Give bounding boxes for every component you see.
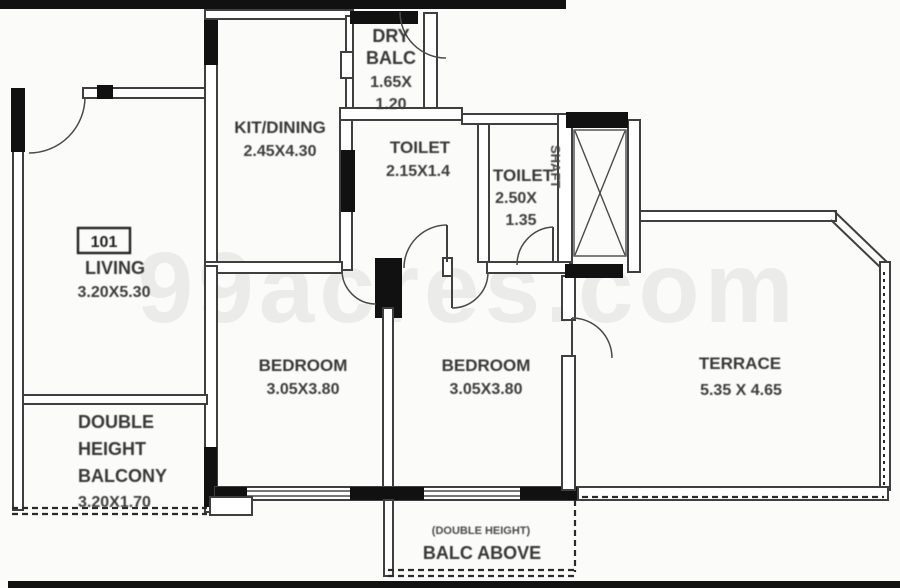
- living-dim: 3.20X5.30: [78, 284, 151, 301]
- entrance-door-arc: [29, 97, 85, 153]
- balcony-corner-detail: [210, 497, 252, 515]
- dry-balc-dim-line2: 1.20: [375, 96, 406, 113]
- dhb-label-line3: BALCONY: [78, 466, 167, 486]
- terrace-corner-column: [565, 264, 623, 278]
- toilet2-right-wall: [558, 114, 572, 265]
- dry-balc-label-line1: DRY: [372, 26, 409, 46]
- toilet2-top-wall: [462, 114, 568, 124]
- room-double-height-balcony: DOUBLE HEIGHT BALCONY 3.20X1.70: [78, 412, 167, 511]
- toilet1-label: TOILET: [390, 138, 451, 157]
- toilet1-dim: 2.15X1.4: [386, 163, 450, 180]
- balc-above-note: (DOUBLE HEIGHT): [432, 525, 531, 537]
- top-border-bar: [0, 0, 566, 9]
- entrance-column: [11, 88, 25, 152]
- room-toilet-1: TOILET 2.15X1.4: [386, 138, 451, 180]
- room-bedroom-1: BEDROOM 3.05X3.80: [259, 356, 348, 398]
- bedroom1-dim: 3.05X3.80: [267, 381, 340, 398]
- floor-plan-canvas: 99acres.com: [0, 0, 900, 588]
- room-bedroom-2: BEDROOM 3.05X3.80: [442, 356, 531, 398]
- room-kit-dining: KIT/DINING 2.45X4.30: [234, 118, 326, 160]
- toilet2-label: TOILET: [493, 166, 554, 185]
- kitchen-top-wall: [205, 10, 353, 19]
- corridor-wall-left: [205, 262, 342, 273]
- watermark-text: 99acres.com: [137, 232, 798, 344]
- toilet1-left-column: [341, 150, 355, 212]
- bedroom2-label: BEDROOM: [442, 356, 531, 375]
- bedroom2-right-wall-upper: [562, 276, 575, 320]
- terrace-dim: 5.35 X 4.65: [700, 382, 782, 399]
- balcony-top-wall: [23, 395, 207, 404]
- bottom-wall-column-2: [350, 487, 424, 500]
- corridor-wall-right: [487, 262, 570, 273]
- dry-balc-dim-line1: 1.65X: [370, 74, 412, 91]
- room-toilet-2: TOILET 2.50X 1.35: [493, 166, 554, 229]
- dry-balc-label-line2: BALC: [366, 48, 416, 68]
- shaft-header-column: [566, 112, 628, 128]
- drybalc-right-wall: [424, 13, 437, 112]
- dhb-label-line2: HEIGHT: [78, 439, 146, 459]
- bedroom2-dim: 3.05X3.80: [450, 381, 523, 398]
- kitchen-left-column: [204, 13, 218, 65]
- dhb-dim: 3.20X1.70: [78, 494, 151, 511]
- toilet2-dim-line1: 2.50X: [495, 190, 537, 207]
- balc-above-label: BALC ABOVE: [423, 543, 541, 563]
- bedrooms-divider-wall: [383, 308, 393, 490]
- terrace-top-wall: [640, 211, 836, 221]
- room-terrace: TERRACE 5.35 X 4.65: [699, 354, 782, 399]
- bedroom2-right-wall-lower: [562, 356, 575, 490]
- drybalc-header-column: [350, 11, 418, 24]
- bedroom1-label: BEDROOM: [259, 356, 348, 375]
- kit-dining-label: KIT/DINING: [234, 118, 326, 137]
- left-outer-wall: [13, 90, 23, 510]
- living-label: LIVING: [85, 258, 145, 278]
- unit-number: 101: [91, 234, 118, 251]
- terrace-chamfer-inner: [831, 220, 881, 268]
- floor-plan: 99acres.com: [0, 0, 900, 588]
- room-dry-balc: DRY BALC 1.65X 1.20: [366, 26, 416, 113]
- room-balc-above: (DOUBLE HEIGHT) BALC ABOVE: [423, 525, 541, 563]
- living-top-column: [97, 85, 113, 99]
- bottom-border-bar: [8, 581, 900, 588]
- shaft-label: SHAFT: [548, 145, 563, 188]
- toilet-divider-wall: [478, 124, 489, 262]
- kit-dining-dim: 2.45X4.30: [244, 143, 317, 160]
- shaft-right-wall: [628, 120, 640, 272]
- dhb-label-line1: DOUBLE: [78, 412, 154, 432]
- toilet2-dim-line2: 1.35: [505, 212, 536, 229]
- balc-above-left-wall: [384, 500, 393, 576]
- terrace-label: TERRACE: [699, 354, 781, 373]
- terrace-chamfer-outer: [835, 212, 889, 264]
- drybalc-window-marker: [341, 52, 353, 78]
